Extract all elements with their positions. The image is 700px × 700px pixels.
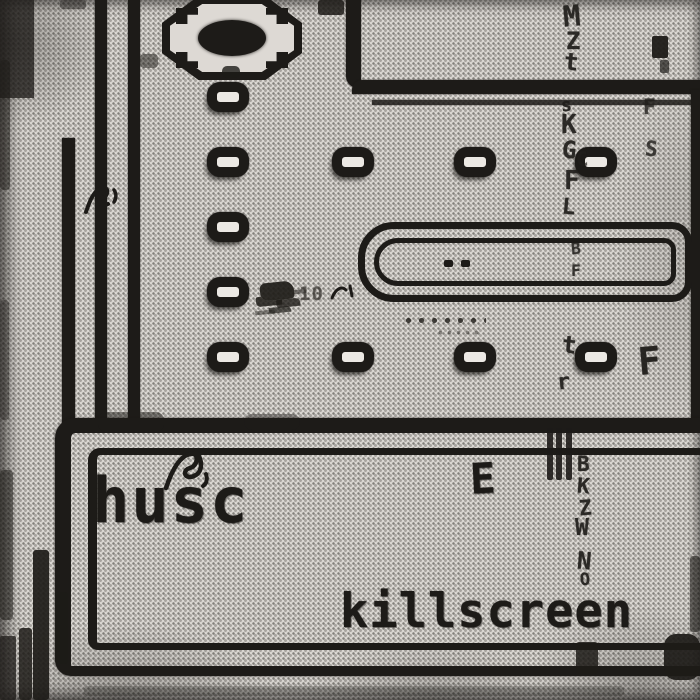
dot-trail [436,329,482,341]
ink-blob [84,686,624,696]
glyph-letter: O [579,572,591,590]
ink-blob [19,628,32,700]
glyph-letter: S [644,138,658,160]
pellet [454,342,496,372]
ink-blob [576,642,598,674]
ink-blob [33,550,49,700]
maze-wall-left-outer [62,138,75,426]
glyph-letter: L [561,196,576,219]
maze-wall-left-inner [128,0,140,428]
pellet [207,147,249,177]
pill-dot [461,260,470,267]
ink-blob [0,300,9,420]
artist-name: husc [92,470,249,532]
box-glyph-letter: E [469,457,496,500]
glyph-letter: t [561,332,577,357]
dot-trail [402,316,486,325]
ink-blob [55,592,68,664]
maze-wall-topright-vertical [346,0,361,88]
pellet [207,277,249,307]
ink-blob [0,60,10,190]
maze-wall-right-edge [691,90,700,422]
ink-blob [690,556,700,632]
glyph-letter: K [561,112,577,138]
ink-blob [222,66,240,78]
glyph-letter: K [576,475,590,497]
album-title: killscreen [340,588,633,635]
octagon-core [198,20,266,56]
pellet [332,342,374,372]
maze-pill-inner-outline [374,238,676,286]
album-art-canvas: 10 husc killscreen E MZtsKGCFLBFtrBKZWNO… [0,0,700,700]
glyph-letter: t [563,49,579,74]
ink-blob [556,428,562,480]
squiggle-doodle-left-wall [80,172,124,220]
glyph-letter: B [577,454,590,475]
ink-blob [652,36,668,58]
ink-blob [0,470,13,620]
pellet [207,212,249,242]
pellet [207,342,249,372]
pellet [575,342,617,372]
glyph-letter: F [636,341,662,381]
ink-blob [140,54,158,68]
ink-blob [98,412,164,432]
glyph-letter: B [570,241,581,258]
pellet [207,82,249,112]
pellet [332,147,374,177]
glyph-letter: r [556,371,571,394]
score-popup: 10 [299,283,324,305]
squiggle-mark-below-pill [328,282,358,302]
ink-blob [566,428,572,480]
ink-blob [318,0,344,15]
ink-blob [664,634,700,680]
creature-sprite [259,280,295,301]
ink-blob [660,60,669,73]
pellet [454,147,496,177]
glyph-letter: F [571,263,581,279]
maze-pill-island [358,222,692,302]
ink-blob [60,0,86,9]
ink-blob [0,636,16,700]
pill-dot [444,260,453,267]
glyph-letter: F [643,97,656,118]
maze-wall-topright-horizontal [352,80,700,94]
ink-blob [547,428,553,480]
ink-blob [244,414,300,430]
glyph-letter: F [564,168,580,194]
glyph-letter: W [575,517,589,540]
